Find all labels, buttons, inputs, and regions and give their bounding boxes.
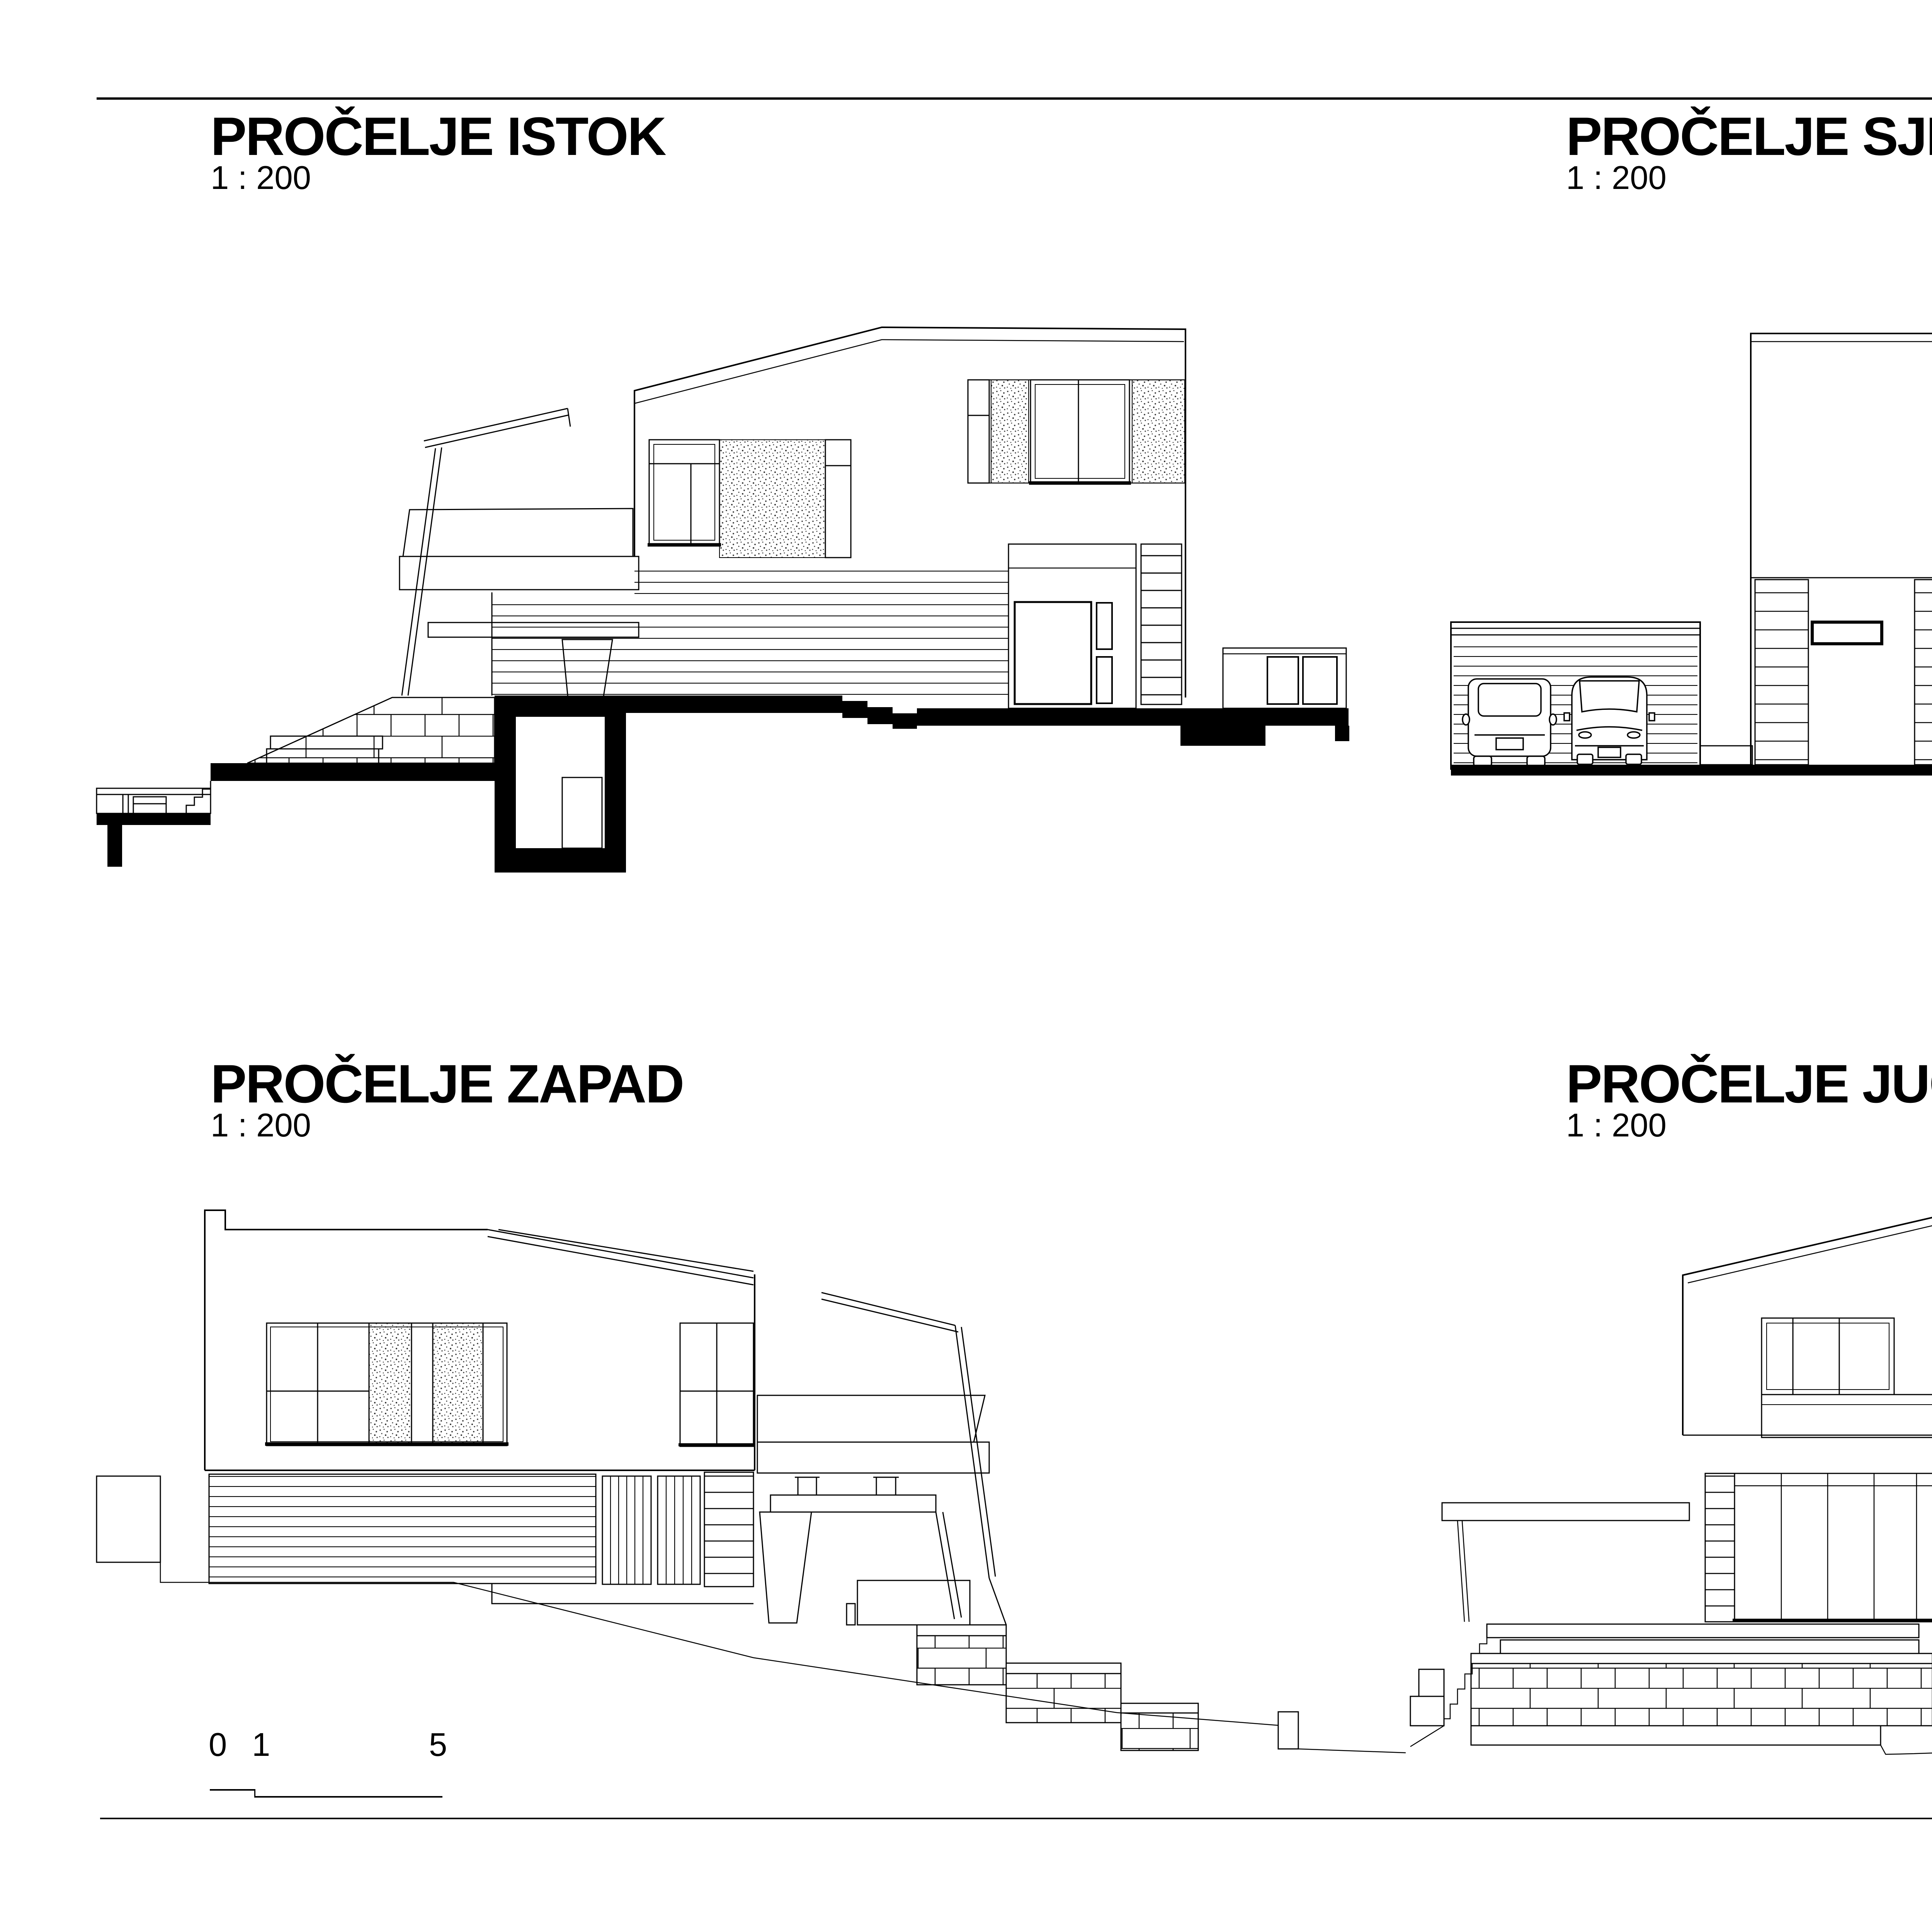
elevation-west-drawing: [97, 1198, 1406, 1778]
title-north: PROČELJE SJEVER: [1566, 109, 1932, 163]
scale-north: 1 : 200: [1566, 162, 1667, 194]
scale-bar-label-1: 1: [252, 1728, 270, 1761]
scale-bar-label-5: 5: [429, 1728, 447, 1761]
elevation-east-drawing: [97, 294, 1372, 935]
scale-bar-segment-long: [255, 1796, 442, 1798]
elevation-north-drawing: [1445, 325, 1932, 858]
drawing-sheet: PROČELJE ISTOK 1 : 200 PROČELJE SJEVER 1…: [0, 0, 1932, 1917]
title-south: PROČELJE JUG: [1566, 1057, 1932, 1111]
car-front-icon: [1564, 677, 1655, 764]
car-rear-icon: [1463, 679, 1556, 766]
elevation-south-drawing: [1406, 1198, 1932, 1778]
scale-east: 1 : 200: [211, 162, 311, 194]
top-rule-line: [97, 97, 1932, 100]
scale-bar-segment-short: [210, 1789, 255, 1791]
title-east: PROČELJE ISTOK: [211, 109, 665, 163]
scale-bar-label-0: 0: [209, 1728, 227, 1761]
bottom-rule-line: [100, 1818, 1932, 1819]
scale-south: 1 : 200: [1566, 1109, 1667, 1142]
scale-west: 1 : 200: [211, 1109, 311, 1142]
title-west: PROČELJE ZAPAD: [211, 1057, 683, 1111]
